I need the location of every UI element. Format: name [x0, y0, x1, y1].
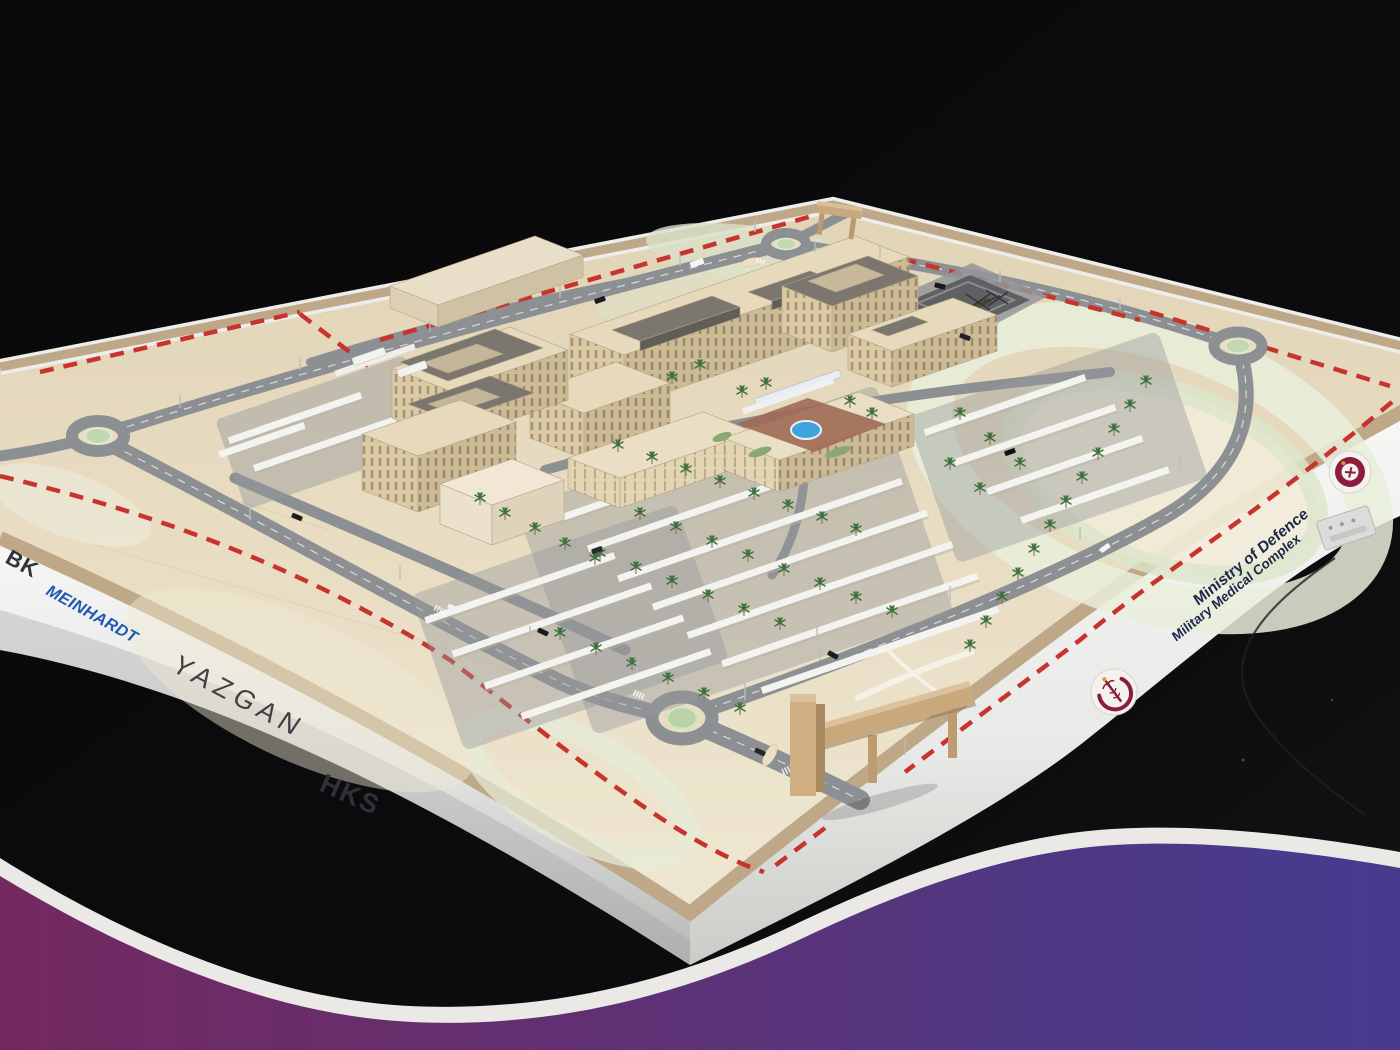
fountain [791, 421, 821, 439]
roundabout-left [72, 421, 124, 451]
photo-stage: Architectural scale model of the Ministr… [0, 0, 1400, 1050]
roundabout-top [766, 233, 806, 255]
roundabout-right [1214, 332, 1262, 360]
model-photo: Architectural scale model of the Ministr… [0, 0, 1400, 1050]
